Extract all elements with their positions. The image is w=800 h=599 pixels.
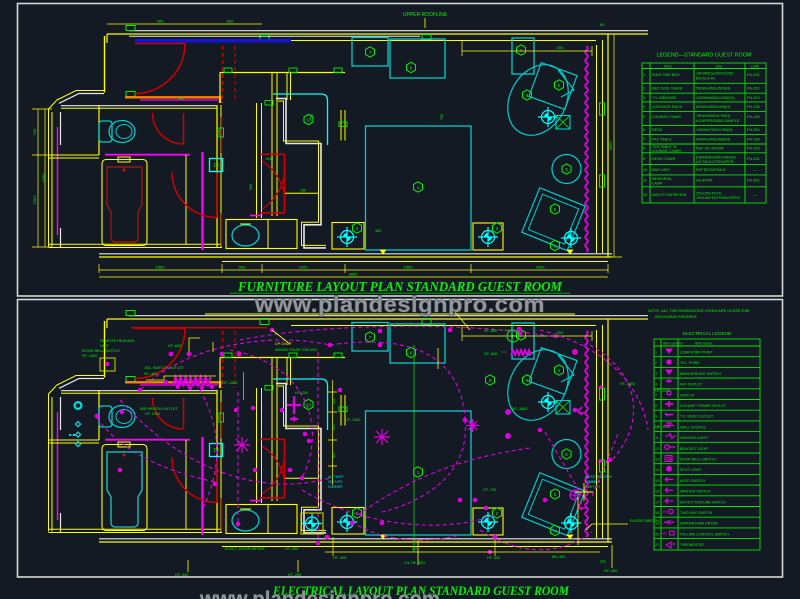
svg-text:HT.-400: HT.-400 — [144, 372, 157, 376]
svg-text:HANGING LIGHT: HANGING LIGHT — [680, 436, 709, 440]
svg-text:REMOTE READING: REMOTE READING — [100, 339, 135, 343]
svg-text:160: 160 — [300, 189, 306, 193]
svg-text:HT.-600: HT.-600 — [484, 352, 497, 356]
svg-text:13: 13 — [655, 458, 659, 462]
svg-text:1000Wx600Dx1350(H): 1000Wx600Dx1350(H) — [696, 96, 735, 100]
svg-text:FN-201: FN-201 — [747, 157, 760, 161]
svg-text:FN-801: FN-801 — [747, 179, 760, 183]
svg-text:MC-400: MC-400 — [552, 555, 566, 559]
svg-text:DOOR BELL SWITCH: DOOR BELL SWITCH — [82, 349, 120, 353]
svg-text:HT.-1800: HT.-1800 — [512, 407, 527, 411]
svg-text:900: 900 — [157, 19, 164, 24]
svg-text:FN-203: FN-203 — [747, 96, 760, 100]
svg-text:465: 465 — [375, 229, 381, 233]
svg-text:3: 3 — [643, 96, 645, 100]
svg-text:7: 7 — [655, 393, 657, 397]
svg-text:(H)600Wx600Dx450(H): (H)600Wx600Dx450(H) — [696, 155, 736, 159]
svg-text:HT.-300: HT.-300 — [175, 573, 188, 577]
svg-text:HT.-1400: HT.-1400 — [82, 354, 97, 358]
svg-text:ITE: ITE — [600, 560, 606, 564]
svg-text:Item name: Item name — [695, 342, 712, 346]
svg-text:18: 18 — [655, 511, 659, 515]
svg-text:1550: 1550 — [404, 265, 414, 270]
svg-text:C/L OF BED: C/L OF BED — [404, 561, 425, 565]
svg-text:AS APPROVED SAMPLE: AS APPROVED SAMPLE — [696, 119, 740, 123]
svg-text:HT. 1300: HT. 1300 — [145, 412, 160, 416]
svg-text:www.plandesignpro.com: www.plandesignpro.com — [199, 588, 440, 599]
svg-text:DO NOT DISTURB SWITCH: DO NOT DISTURB SWITCH — [680, 500, 726, 504]
svg-text:DOOR BELL SWITCH: DOOR BELL SWITCH — [680, 458, 716, 462]
svg-text:200x250 TOTE: 200x250 TOTE — [696, 192, 722, 196]
svg-text:THERMOSTAT: THERMOSTAT — [680, 543, 705, 547]
svg-text:DESK CHAIR: DESK CHAIR — [652, 157, 675, 161]
svg-text:19: 19 — [655, 522, 659, 526]
svg-text:10: 10 — [655, 425, 659, 429]
svg-text:ABOVE FALSE CEILING: ABOVE FALSE CEILING — [275, 348, 317, 352]
svg-text:AUT BDP: AUT BDP — [328, 475, 344, 479]
svg-text:FAX TABLE: FAX TABLE — [652, 138, 672, 142]
svg-text:1400Wx700Dx750(H): 1400Wx700Dx750(H) — [696, 128, 733, 132]
svg-text:BH(SLA.R): BH(SLA.R) — [696, 77, 716, 81]
svg-text:1800W(2)x2000x2050: 1800W(2)x2000x2050 — [696, 72, 733, 76]
svg-text:VOLUME CONTROL SWITCH: VOLUME CONTROL SWITCH — [680, 532, 729, 536]
svg-text:3950: 3950 — [608, 141, 613, 151]
svg-text:TWO WAY SWITCH: TWO WAY SWITCH — [680, 511, 713, 515]
svg-text:UNIT: UNIT — [100, 344, 110, 348]
svg-text:1000: 1000 — [299, 265, 309, 270]
svg-text:—: — — [753, 168, 757, 172]
svg-text:5: 5 — [643, 115, 645, 119]
svg-text:T.V. VIDEO OUTLET: T.V. VIDEO OUTLET — [680, 415, 714, 419]
svg-text:17: 17 — [655, 500, 659, 504]
svg-text:SHAVER/HAIR DRYER: SHAVER/HAIR DRYER — [680, 522, 718, 526]
svg-text:1: 1 — [643, 73, 645, 77]
svg-text:1500: 1500 — [32, 195, 37, 205]
svg-text:NOTE: ALL THE DIMENSIONS GIVEN: NOTE: ALL THE DIMENSIONS GIVEN ARE CLEAR… — [648, 308, 749, 313]
svg-text:750: 750 — [310, 114, 314, 120]
svg-text:SWITCH: SWITCH — [680, 393, 695, 397]
svg-text:DIMMER: DIMMER — [328, 485, 343, 489]
svg-text:4: 4 — [655, 383, 657, 387]
svg-text:WASTER SWITCH: WASTER SWITCH — [680, 490, 711, 494]
svg-text:20: 20 — [655, 532, 659, 536]
svg-text:HT.-700: HT.-700 — [483, 488, 496, 492]
svg-text:WALL SCONCE: WALL SCONCE — [680, 425, 706, 429]
svg-text:VD: VD — [662, 532, 667, 536]
svg-text:FN-206: FN-206 — [747, 138, 760, 142]
svg-text:10: 10 — [643, 168, 647, 172]
svg-text:2: 2 — [655, 361, 657, 365]
svg-text:5/15 AMP. POWER OUTLET: 5/15 AMP. POWER OUTLET — [680, 404, 727, 408]
svg-text:HT.-250: HT.-250 — [285, 547, 298, 551]
svg-text:LEGEND—STANDARD GUEST ROOM: LEGEND—STANDARD GUEST ROOM — [656, 53, 752, 59]
svg-text:4: 4 — [643, 105, 645, 109]
svg-text:1800: 1800 — [536, 265, 546, 270]
svg-text:Item symbol: Item symbol — [663, 342, 683, 346]
svg-text:FN-205: FN-205 — [747, 115, 760, 119]
svg-text:HT.-400: HT.-400 — [604, 569, 617, 573]
svg-text:www.plandesignpro.com: www.plandesignpro.com — [254, 292, 545, 317]
svg-text:UPPER ROOFLINE: UPPER ROOFLINE — [403, 12, 448, 18]
svg-text:2: 2 — [643, 87, 645, 91]
svg-text:900: 900 — [332, 424, 336, 430]
svg-text:FN-203: FN-203 — [747, 147, 760, 151]
svg-text:HT.-400: HT.-400 — [333, 556, 346, 560]
svg-text:9: 9 — [655, 415, 657, 419]
svg-text:BED SIDE TABLE: BED SIDE TABLE — [652, 87, 683, 91]
svg-text:7: 7 — [643, 138, 645, 142]
svg-text:AS APPR.: AS APPR. — [696, 179, 713, 183]
svg-text:16: 16 — [655, 490, 659, 494]
svg-text:REF DIL ROOM: REF DIL ROOM — [696, 147, 723, 151]
svg-text:900: 900 — [249, 184, 253, 190]
svg-text:1: 1 — [655, 351, 657, 355]
svg-text:DESK: DESK — [652, 128, 663, 132]
svg-text:—: — — [753, 193, 757, 197]
svg-text:600: 600 — [227, 19, 234, 24]
svg-text:AUTO SWITCH: AUTO SWITCH — [680, 479, 705, 483]
svg-text:750: 750 — [440, 114, 444, 120]
svg-text:800Wx450Dx400(H): 800Wx450Dx400(H) — [696, 105, 731, 109]
svg-text:Item: Item — [664, 64, 671, 68]
svg-text:SPOT LIGHT: SPOT LIGHT — [680, 468, 702, 472]
svg-text:REFER DETAILS: REFER DETAILS — [696, 168, 726, 172]
svg-text:SETUPS: SETUPS — [328, 480, 343, 484]
svg-text:LAMP: LAMP — [652, 182, 663, 186]
svg-text:COMPUTER POINT: COMPUTER POINT — [680, 351, 713, 355]
svg-text:BATHROOM OUTLET: BATHROOM OUTLET — [140, 407, 178, 411]
svg-text:ELECTRICAL LEGEND: ELECTRICAL LEGEND — [683, 331, 732, 336]
svg-text:KING SIZE BED: KING SIZE BED — [652, 73, 680, 77]
svg-text:BAR UNIT: BAR UNIT — [652, 168, 670, 172]
svg-text:code: code — [751, 64, 759, 68]
svg-text:1500: 1500 — [156, 265, 166, 270]
svg-text:450: 450 — [332, 452, 336, 458]
svg-text:15A. SWITCH OUTLET: 15A. SWITCH OUTLET — [144, 366, 185, 370]
svg-text:ELECT. DOOR METER: ELECT. DOOR METER — [225, 547, 265, 551]
svg-text:400Wx400Dx650(H): 400Wx400Dx650(H) — [696, 138, 731, 142]
svg-text:50: 50 — [600, 22, 605, 27]
svg-text:T.V. ARMOIRE: T.V. ARMOIRE — [652, 96, 677, 100]
svg-text:AS SELECTED/APPR.: AS SELECTED/APPR. — [696, 160, 735, 164]
svg-text:FN-202: FN-202 — [747, 87, 760, 91]
svg-text:HT.-1400: HT.-1400 — [620, 382, 635, 386]
svg-text:HT.-300: HT.-300 — [487, 556, 500, 560]
svg-text:LUGGAGE RACK: LUGGAGE RACK — [652, 105, 683, 109]
svg-text:11: 11 — [643, 179, 647, 183]
svg-text:300: 300 — [412, 547, 418, 551]
svg-text:AUTO SWITCH: AUTO SWITCH — [585, 475, 612, 479]
svg-text:12: 12 — [643, 193, 647, 197]
svg-text:11: 11 — [655, 436, 659, 440]
svg-text:15: 15 — [655, 479, 659, 483]
svg-text:250: 250 — [332, 398, 336, 404]
svg-text:2W: 2W — [662, 510, 668, 514]
svg-text:750: 750 — [32, 128, 37, 135]
svg-text:HT.-250: HT.-250 — [288, 573, 301, 577]
svg-text:HT.-1300: HT.-1300 — [222, 381, 237, 385]
svg-text:FN-204: FN-204 — [747, 128, 760, 132]
svg-text:780Wx800Dx730(H): 780Wx800Dx730(H) — [696, 114, 731, 118]
svg-text:BRACKET LIGHT: BRACKET LIGHT — [680, 447, 709, 451]
svg-text:100: 100 — [178, 97, 184, 101]
svg-text:MAIN SERVICE SWITCH: MAIN SERVICE SWITCH — [680, 372, 721, 376]
svg-text:HT.-1300: HT.-1300 — [345, 418, 360, 422]
svg-text:1600: 1600 — [265, 157, 273, 161]
svg-text:4850: 4850 — [349, 272, 359, 277]
svg-text:INCLUDING FINISHES: INCLUDING FINISHES — [655, 314, 697, 319]
svg-text:12: 12 — [655, 447, 659, 451]
svg-text:8: 8 — [655, 404, 657, 408]
svg-text:SWITCH: SWITCH — [585, 485, 600, 489]
svg-text:LOUNGE CHAIR: LOUNGE CHAIR — [652, 149, 681, 153]
svg-text:3: 3 — [655, 372, 657, 376]
svg-text:9: 9 — [643, 157, 645, 161]
svg-text:HT.-850: HT.-850 — [484, 329, 497, 333]
svg-text:6: 6 — [643, 128, 645, 132]
svg-text:LOUNGE CHAIR: LOUNGE CHAIR — [652, 115, 681, 119]
svg-text:MEMORIAL: MEMORIAL — [652, 177, 672, 181]
svg-text:21: 21 — [655, 543, 659, 547]
svg-text:HT.-200: HT.-200 — [295, 391, 308, 395]
svg-text:150x150 DISTRIBUTED E: 150x150 DISTRIBUTED E — [696, 196, 741, 200]
svg-text:size: size — [716, 64, 723, 68]
svg-text:FN-201: FN-201 — [747, 73, 760, 77]
svg-text:HT.-600: HT.-600 — [168, 344, 181, 348]
svg-text:8: 8 — [643, 147, 645, 151]
svg-text:FAX OUTLET: FAX OUTLET — [680, 383, 703, 387]
svg-text:WASTE PAPER BIN: WASTE PAPER BIN — [652, 193, 687, 197]
svg-text:DP DNDT: DP DNDT — [275, 342, 292, 346]
svg-text:550Wx450Dx520(H): 550Wx450Dx520(H) — [696, 87, 731, 91]
svg-text:500: 500 — [239, 265, 246, 270]
svg-text:FN-208: FN-208 — [747, 105, 760, 109]
svg-text:14: 14 — [655, 468, 659, 472]
svg-text:TEL. POINT: TEL. POINT — [680, 361, 700, 365]
